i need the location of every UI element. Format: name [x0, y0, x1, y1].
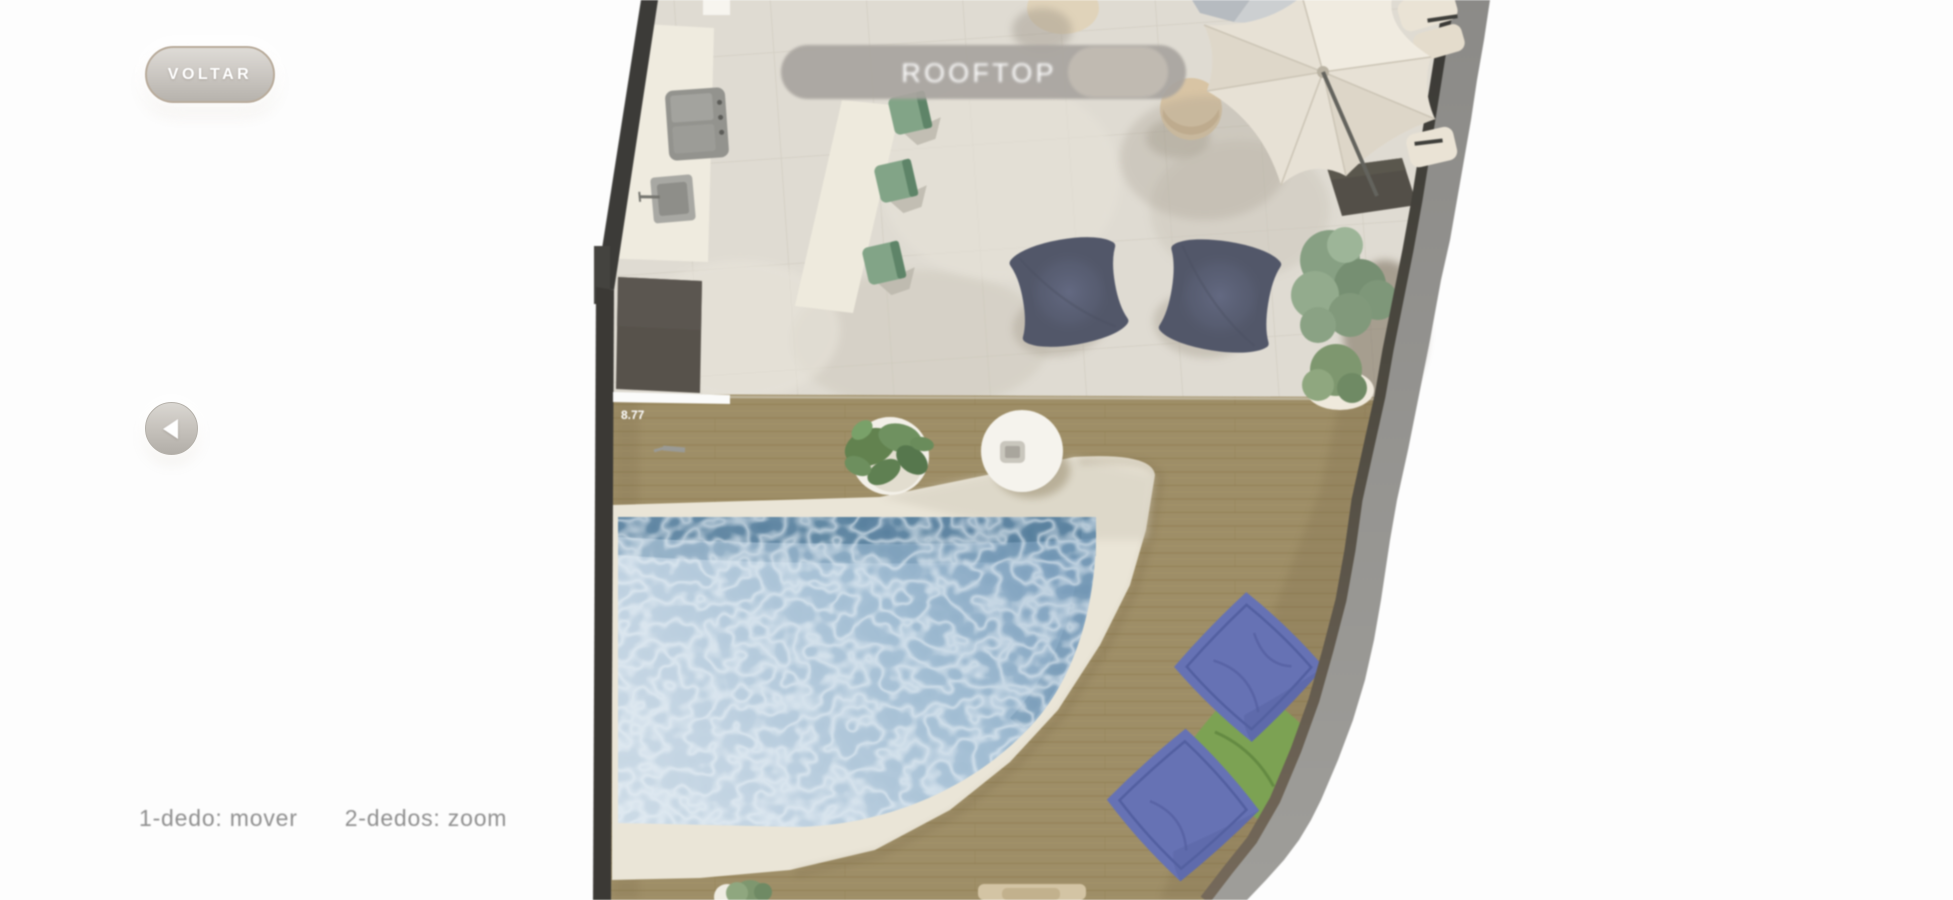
svg-text:ROOFTOP: ROOFTOP [901, 58, 1056, 88]
svg-text:8.77: 8.77 [621, 408, 645, 422]
